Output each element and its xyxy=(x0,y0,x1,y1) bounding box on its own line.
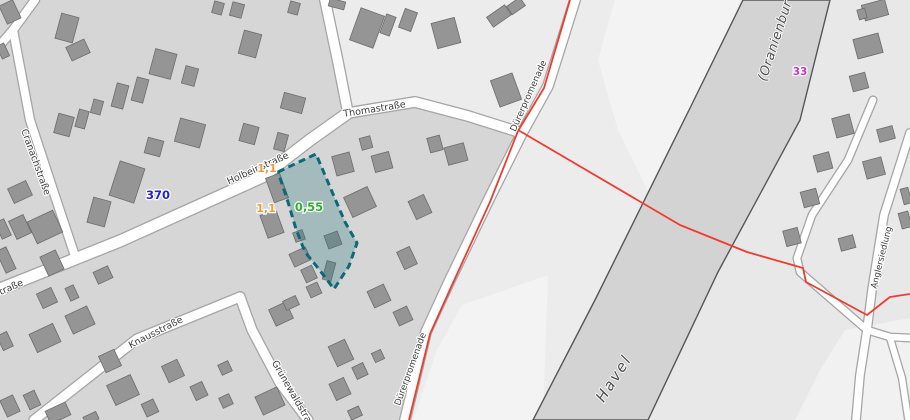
value-label-brw-0-55: 0,55 xyxy=(295,200,323,214)
building xyxy=(144,137,164,157)
value-label-brw-1-1-a: 1,1 xyxy=(257,162,277,175)
value-label-brw-33: 33 xyxy=(793,66,808,78)
map-viewport[interactable]: CranachstraßeHolbeinstraßestraßeKnausstr… xyxy=(0,0,910,420)
value-label-brw-370: 370 xyxy=(146,188,170,202)
map-canvas[interactable]: CranachstraßeHolbeinstraßestraßeKnausstr… xyxy=(0,0,910,420)
value-label-brw-1-1-b: 1,1 xyxy=(256,202,276,215)
